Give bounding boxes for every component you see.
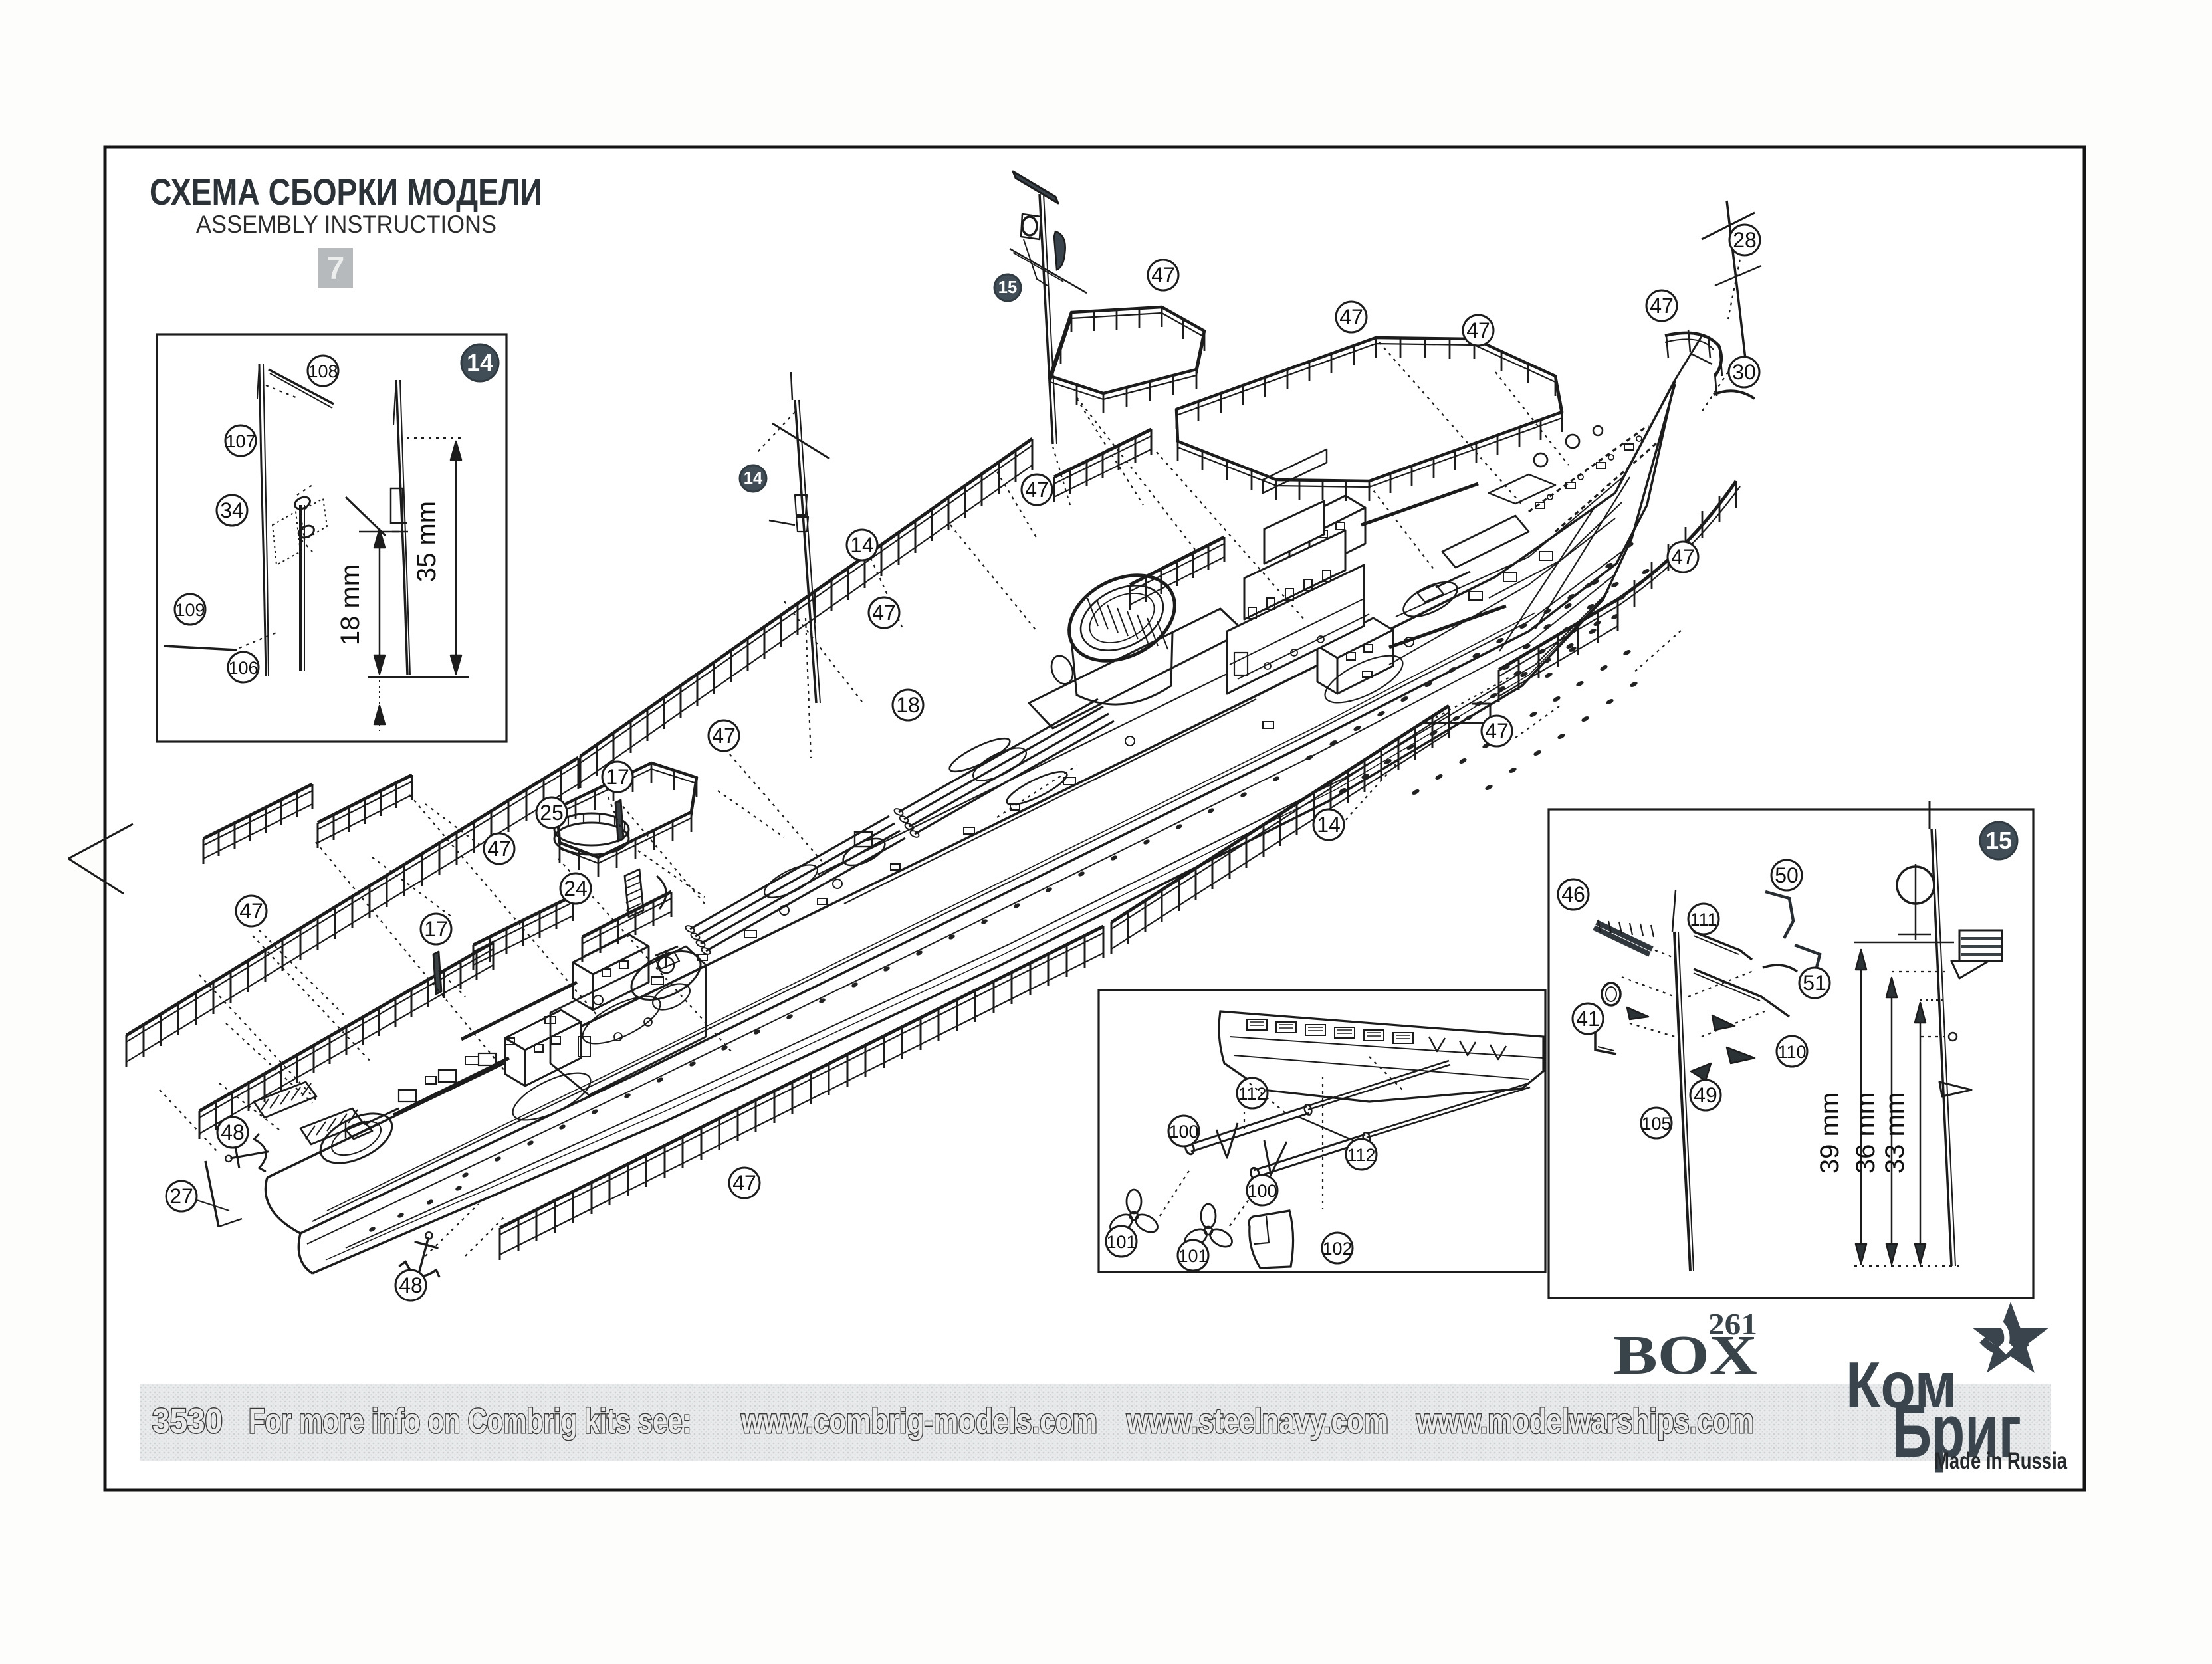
svg-text:14: 14 [850,533,874,557]
svg-text:36 mm: 36 mm [1851,1092,1880,1174]
svg-text:107: 107 [225,431,255,451]
svg-text:3530: 3530 [152,1402,223,1441]
svg-text:48: 48 [221,1120,245,1144]
svg-text:18: 18 [896,693,920,717]
svg-text:48: 48 [399,1273,423,1297]
svg-text:101: 101 [1178,1246,1208,1266]
svg-text:110: 110 [1777,1042,1806,1062]
svg-text:35 mm: 35 mm [412,501,441,582]
svg-text:108: 108 [308,362,338,381]
svg-text:47: 47 [732,1171,756,1195]
svg-text:СХЕМА СБОРКИ МОДЕЛИ: СХЕМА СБОРКИ МОДЕЛИ [150,171,542,213]
svg-text:41: 41 [1576,1007,1600,1031]
svg-text:106: 106 [228,658,258,678]
svg-text:47: 47 [487,837,511,861]
svg-text:7: 7 [327,251,345,286]
svg-text:47: 47 [1650,294,1674,318]
svg-text:47: 47 [872,601,896,625]
svg-text:www.steelnavy.com: www.steelnavy.com [1126,1402,1388,1441]
svg-text:47: 47 [1151,263,1175,287]
svg-text:49: 49 [1694,1083,1717,1107]
svg-text:15: 15 [998,278,1017,297]
svg-text:47: 47 [1339,305,1363,329]
svg-text:100: 100 [1168,1122,1198,1142]
svg-text:www.combrig-models.com: www.combrig-models.com [740,1402,1097,1441]
svg-text:111: 111 [1690,910,1717,930]
svg-text:30: 30 [1732,360,1756,384]
svg-text:24: 24 [564,877,588,900]
svg-text:17: 17 [606,765,629,789]
svg-text:47: 47 [1466,318,1490,342]
svg-text:47: 47 [1671,545,1695,569]
svg-text:ASSEMBLY INSTRUCTIONS: ASSEMBLY INSTRUCTIONS [196,211,497,238]
svg-text:51: 51 [1803,971,1826,995]
svg-text:46: 46 [1561,883,1585,906]
svg-text:18 mm: 18 mm [336,564,365,645]
svg-text:112: 112 [1347,1145,1375,1165]
svg-text:27: 27 [169,1184,193,1208]
svg-text:15: 15 [1985,827,2012,854]
svg-text:261: 261 [1708,1307,1757,1341]
svg-text:25: 25 [540,801,564,825]
svg-text:33 mm: 33 mm [1880,1092,1910,1174]
svg-text:101: 101 [1106,1232,1136,1252]
svg-text:47: 47 [239,899,263,923]
svg-text:For more info on Combrig kits: For more info on Combrig kits see: [249,1402,691,1441]
svg-text:105: 105 [1641,1114,1671,1134]
svg-text:109: 109 [175,600,205,620]
svg-text:47: 47 [712,724,736,748]
svg-text:14: 14 [467,350,493,376]
svg-text:50: 50 [1775,863,1799,887]
svg-text:39 mm: 39 mm [1815,1092,1844,1174]
svg-text:17: 17 [424,917,448,941]
svg-text:47: 47 [1025,478,1049,502]
svg-text:100: 100 [1247,1181,1277,1201]
svg-text:www.modelwarships.com: www.modelwarships.com [1416,1402,1754,1441]
svg-text:34: 34 [220,498,244,522]
svg-text:47: 47 [1485,719,1509,743]
svg-text:28: 28 [1733,228,1757,252]
svg-text:102: 102 [1322,1239,1352,1259]
svg-text:14: 14 [744,469,763,488]
svg-text:Made in Russia: Made in Russia [1934,1448,2067,1474]
svg-text:14: 14 [1317,813,1341,837]
